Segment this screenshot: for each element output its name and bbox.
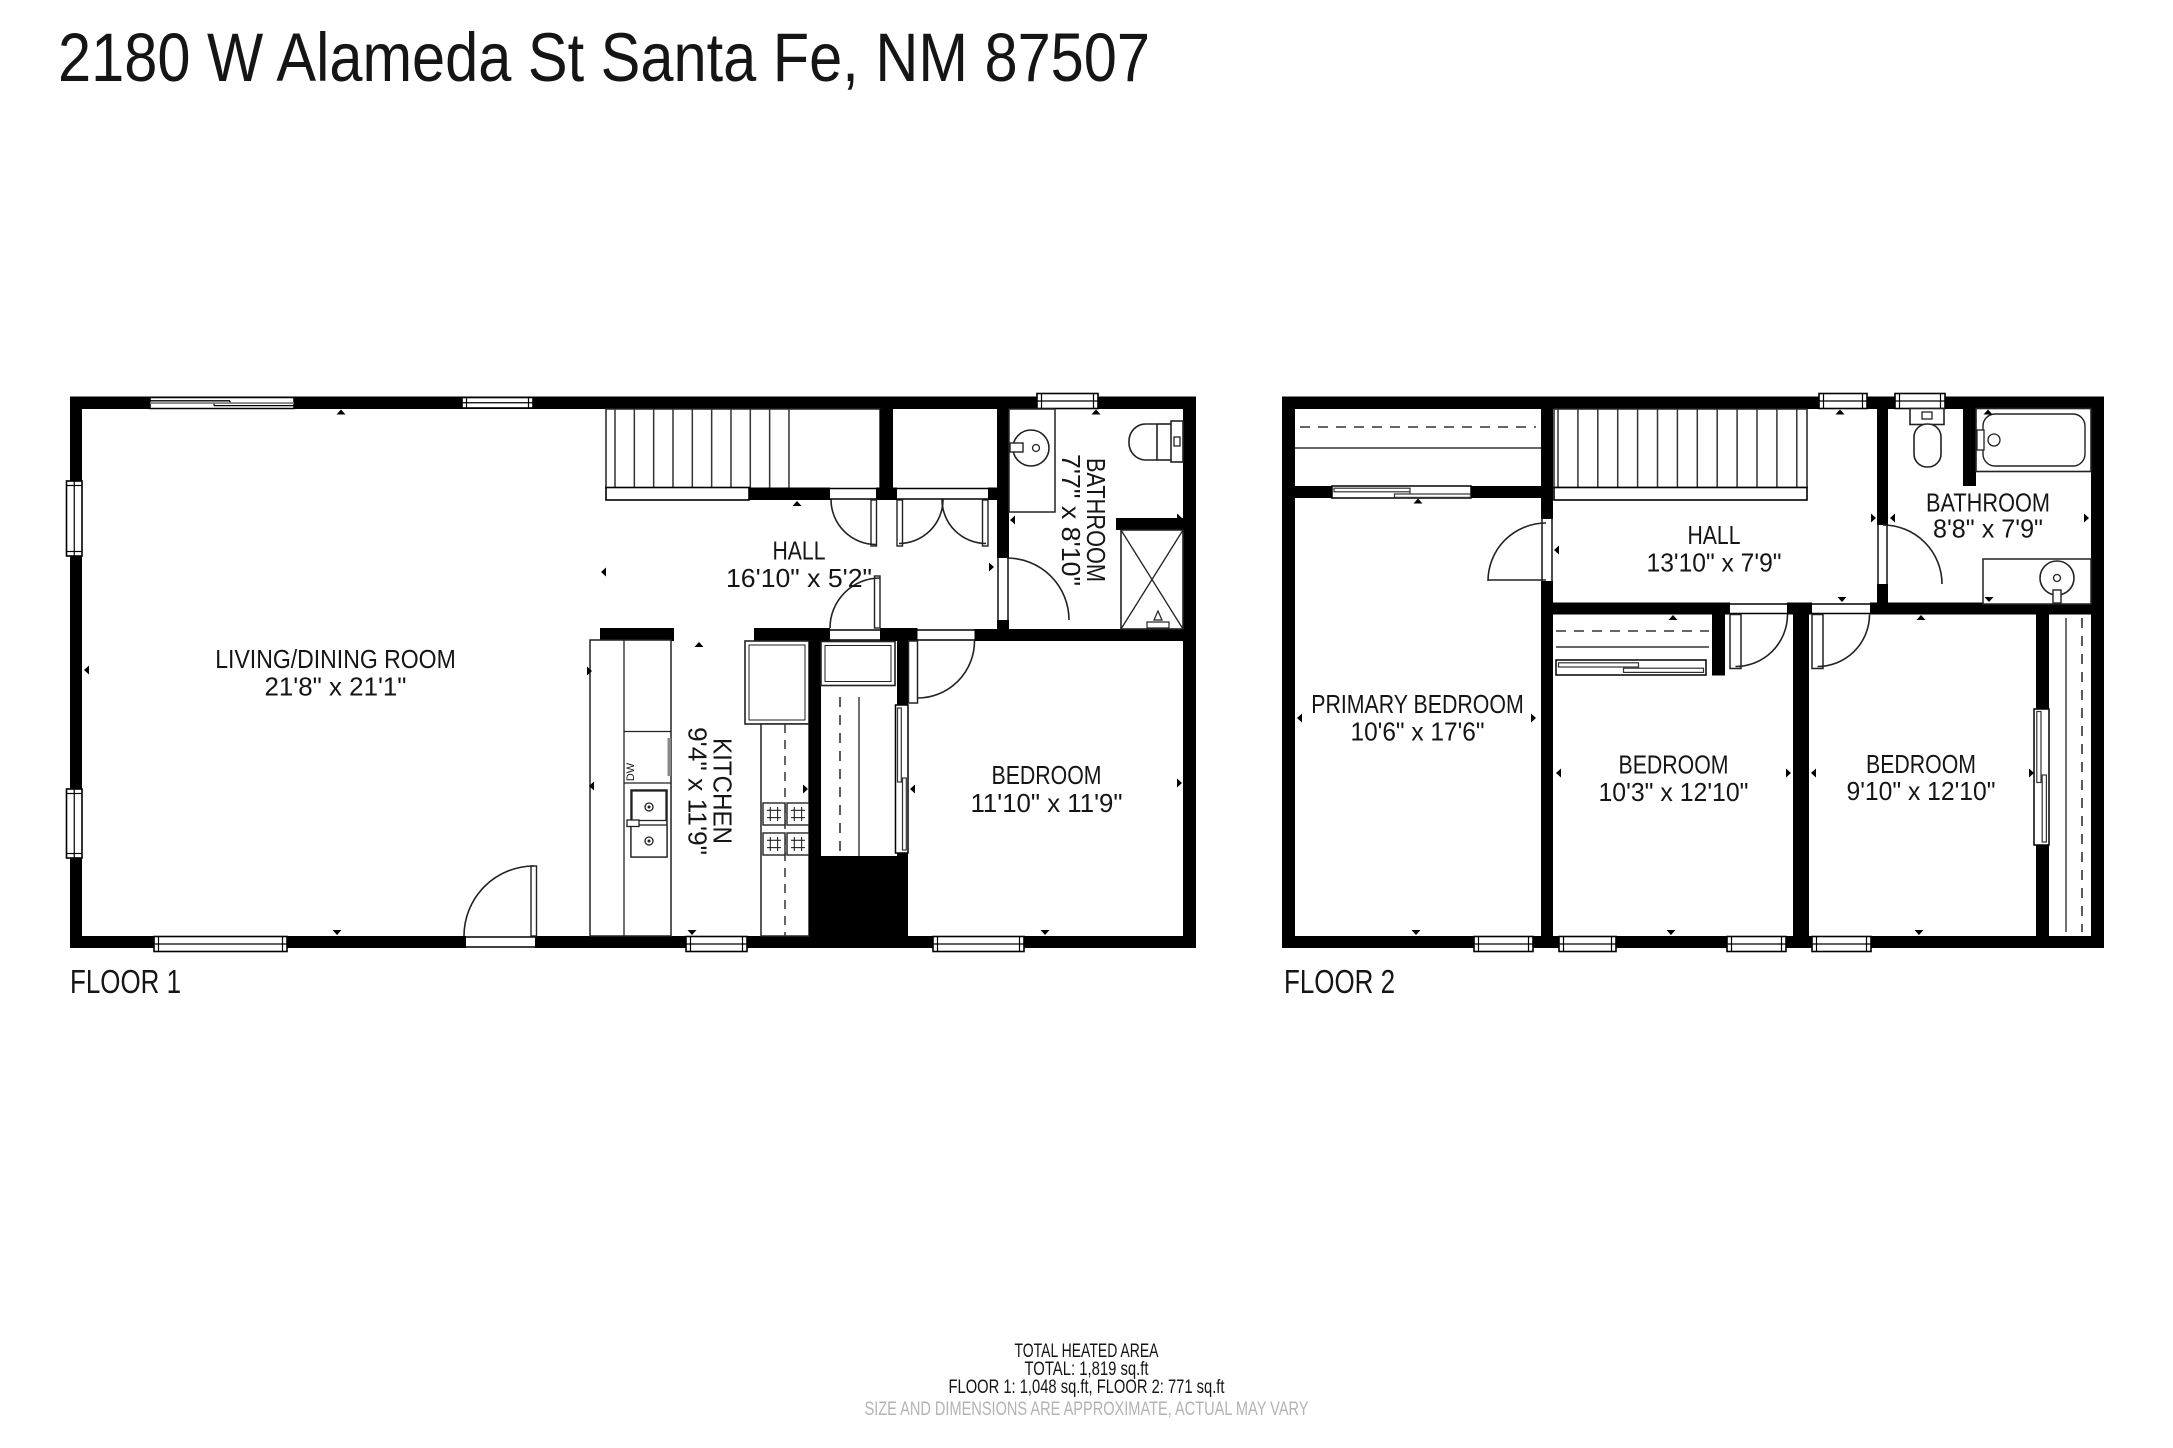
svg-text:HALL: HALL <box>773 536 826 566</box>
svg-text:16'10" x 5'2": 16'10" x 5'2" <box>726 563 872 593</box>
svg-text:FLOOR 1: FLOOR 1 <box>70 963 181 1000</box>
svg-text:7'7" x 8'10": 7'7" x 8'10" <box>1056 454 1086 586</box>
svg-text:BEDROOM: BEDROOM <box>992 760 1102 790</box>
svg-text:PRIMARY BEDROOM: PRIMARY BEDROOM <box>1311 689 1524 719</box>
svg-text:10'3" x 12'10": 10'3" x 12'10" <box>1599 777 1749 807</box>
svg-text:10'6" x 17'6": 10'6" x 17'6" <box>1351 717 1485 747</box>
svg-text:21'8" x 21'1": 21'8" x 21'1" <box>265 672 407 702</box>
svg-text:LIVING/DINING ROOM: LIVING/DINING ROOM <box>215 644 456 674</box>
svg-text:8'8" x 7'9": 8'8" x 7'9" <box>1933 514 2043 544</box>
svg-text:FLOOR 2: FLOOR 2 <box>1284 963 1395 1000</box>
svg-text:FLOOR 1: 1,048 sq.ft, FLOOR 2:: FLOOR 1: 1,048 sq.ft, FLOOR 2: 771 sq.ft <box>949 1377 1226 1398</box>
svg-text:9'10" x 12'10": 9'10" x 12'10" <box>1847 776 1996 806</box>
svg-text:SIZE AND DIMENSIONS ARE APPROX: SIZE AND DIMENSIONS ARE APPROXIMATE, ACT… <box>865 1399 1309 1420</box>
svg-text:13'10" x 7'9": 13'10" x 7'9" <box>1647 548 1782 578</box>
svg-text:HALL: HALL <box>1688 520 1741 550</box>
svg-text:9'4" x 11'9": 9'4" x 11'9" <box>683 727 713 855</box>
svg-text:DW: DW <box>625 762 637 781</box>
svg-text:BEDROOM: BEDROOM <box>1619 750 1729 780</box>
svg-text:BEDROOM: BEDROOM <box>1866 749 1976 779</box>
svg-text:2180 W Alameda St Santa Fe, NM: 2180 W Alameda St Santa Fe, NM 87507 <box>58 19 1150 96</box>
svg-text:11'10" x 11'9": 11'10" x 11'9" <box>971 788 1123 818</box>
